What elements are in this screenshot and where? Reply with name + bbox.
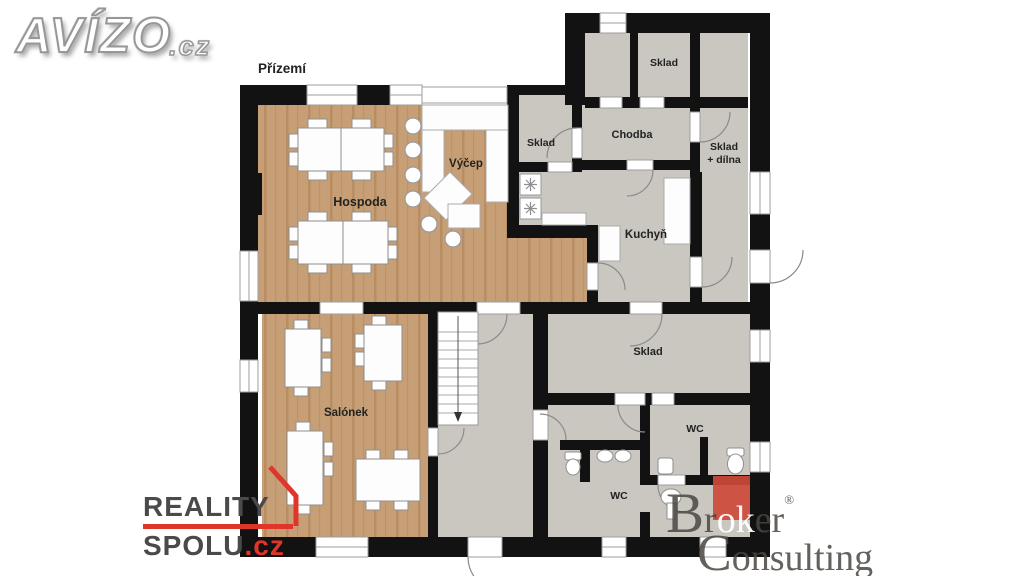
table [285, 329, 321, 387]
reality-spolu-line1: REALITY [143, 493, 293, 521]
door-gap [640, 97, 664, 108]
door-gap [548, 162, 572, 172]
exterior-door-gap [468, 537, 502, 557]
table [364, 325, 402, 381]
floor-title: Přízemí [258, 61, 307, 76]
room-label-wc-bottom: WC [610, 490, 628, 502]
door-gap [615, 393, 645, 405]
door-gap [630, 302, 662, 314]
room-label-sklad-dilna-2: + dílna [707, 154, 741, 166]
floor-plan-page: Přízemí Hospoda Výčep Sklad Chodba Sklad… [0, 0, 1024, 576]
broker-consulting-logo: Broker® Consulting [666, 480, 873, 572]
avizo-logo: AVÍZO.cz [16, 8, 214, 64]
exterior-door-arc [468, 557, 502, 576]
room-label-chodba: Chodba [612, 129, 654, 141]
reality-spolu-logo: REALITY SPOLU.cz [143, 493, 293, 560]
stove-icon [520, 174, 541, 195]
door-gap [320, 302, 363, 314]
broker-line2: Consulting [697, 540, 873, 572]
reality-spolu-tld: .cz [244, 530, 284, 561]
room-label-hospoda: Hospoda [333, 195, 388, 209]
room-label-sklad-dilna-1: Sklad [710, 141, 738, 153]
room-label-vycep: Výčep [449, 158, 483, 170]
window [422, 87, 507, 103]
room-label-sklad-big: Sklad [633, 346, 662, 358]
room-label-kuchyn: Kuchyň [625, 229, 667, 241]
door-gap [652, 393, 674, 405]
door-gap [428, 428, 438, 456]
exterior-door-gap [750, 250, 770, 283]
door-gap [572, 128, 582, 158]
staircase [438, 312, 478, 425]
urinal-icon [658, 458, 673, 474]
room-label-salonek: Salónek [324, 407, 369, 419]
toilet-icon [565, 452, 581, 475]
toilet-icon [727, 448, 744, 474]
stove-icon [520, 198, 541, 219]
reality-spolu-underline [143, 524, 293, 529]
avizo-logo-text: AVÍZO [16, 9, 172, 63]
room-label-wc-right: WC [686, 423, 704, 435]
door-gap [587, 263, 598, 290]
door-gap [627, 160, 653, 170]
door-gap [477, 302, 520, 314]
door-gap [690, 112, 700, 142]
sink-icon [615, 450, 631, 462]
room-label-sklad-annex: Sklad [650, 57, 678, 69]
floor-sklad-dilna [700, 33, 748, 303]
door-gap [600, 97, 622, 108]
door-gap [690, 257, 702, 287]
sink-icon [597, 450, 613, 462]
room-label-sklad-small: Sklad [527, 137, 555, 149]
avizo-logo-tld: .cz [169, 31, 211, 61]
registered-mark: ® [784, 492, 794, 507]
table [356, 459, 420, 501]
door-arc [770, 250, 803, 283]
reality-spolu-line2: SPOLU.cz [143, 532, 293, 560]
